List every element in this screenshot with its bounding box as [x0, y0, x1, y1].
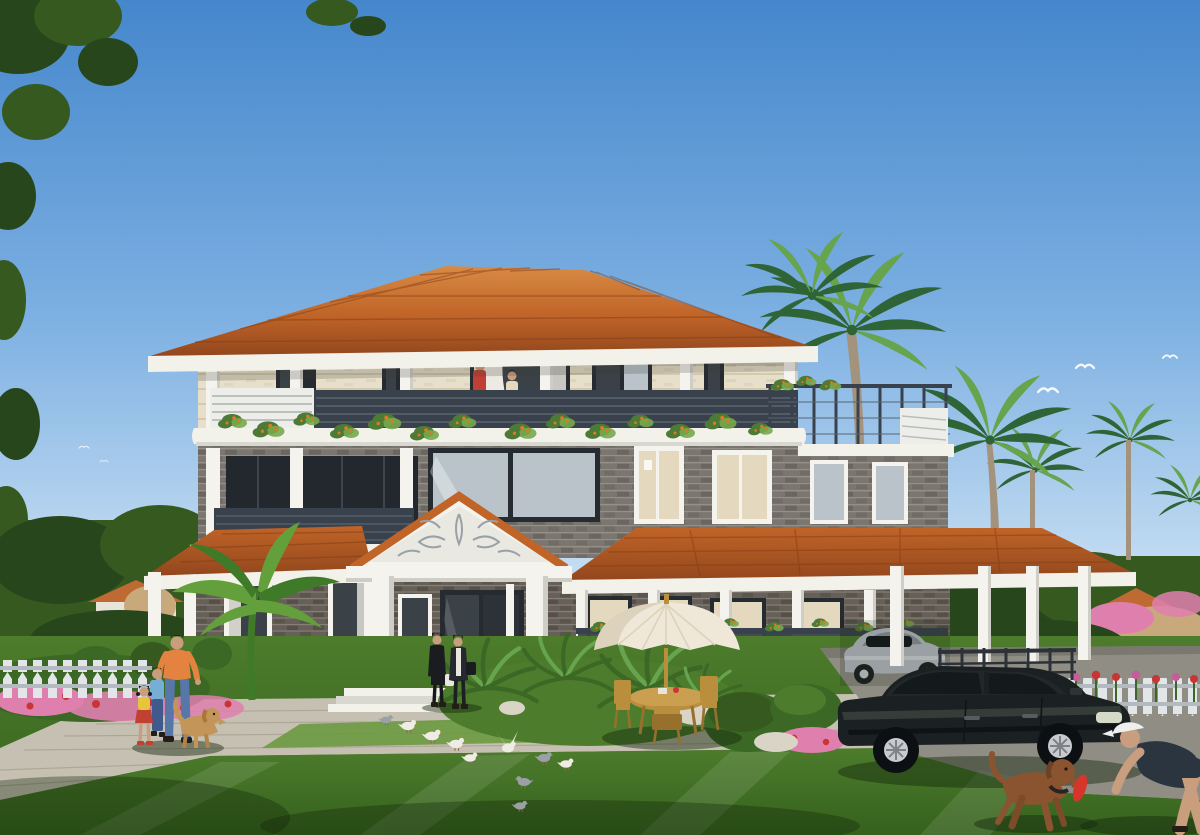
shoulder-bag — [466, 662, 476, 675]
villa-scene — [0, 0, 1200, 835]
wraparound-porch-roof — [562, 528, 1136, 594]
rendered-photo — [0, 0, 1200, 835]
window-white-2 — [712, 450, 772, 524]
headlight — [1096, 712, 1122, 723]
left-picket-fence — [0, 660, 152, 698]
window-white-1 — [634, 446, 684, 524]
